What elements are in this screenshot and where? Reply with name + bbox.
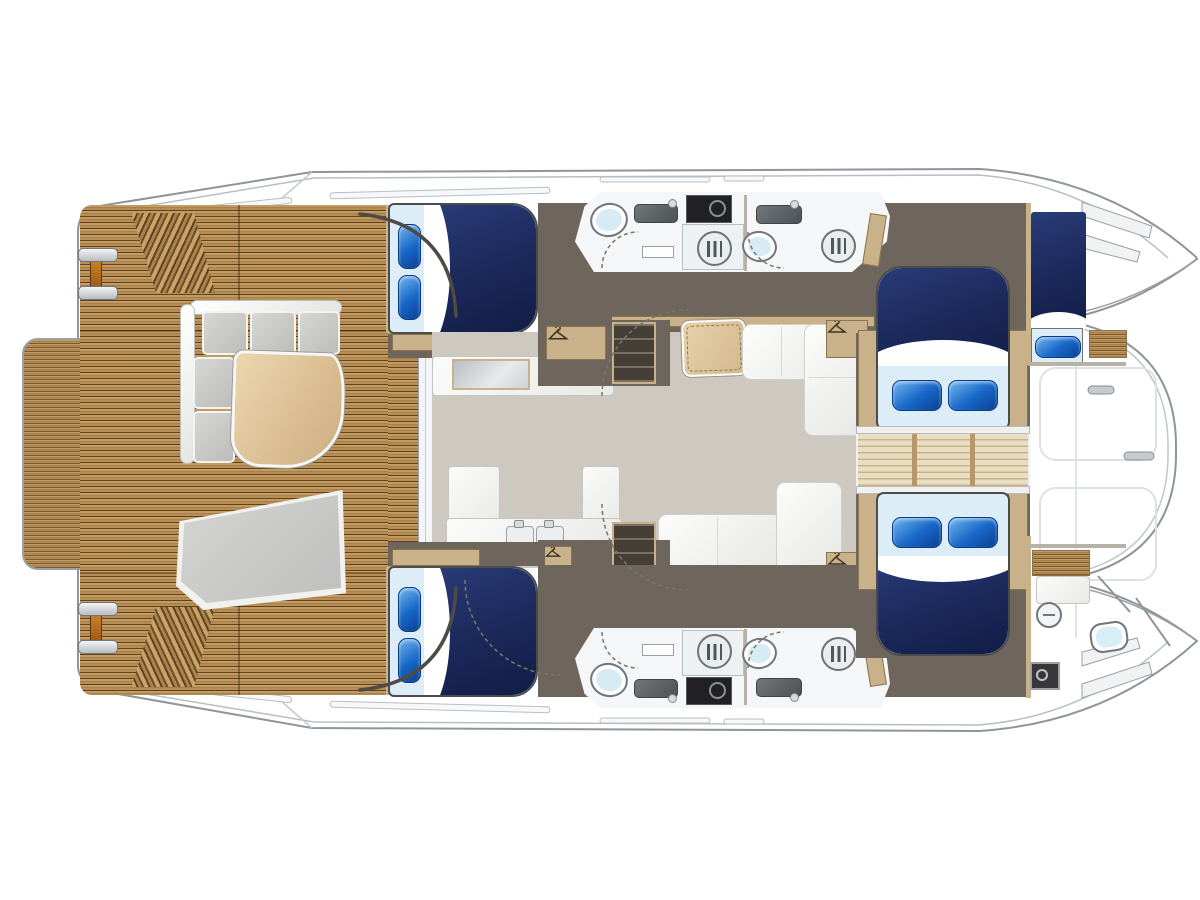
shower-mixer [1036,602,1062,628]
galley-counter-left [448,466,500,526]
drain-slots [831,238,846,254]
pillow [398,224,421,269]
heads-divider-wall [744,629,747,705]
cleat-icon [78,600,118,656]
hanger-icon [547,327,569,342]
salon-sofa [658,514,782,572]
duvet [424,568,536,695]
shower-fitting [642,644,674,656]
skipper-cabin-wall [1028,362,1126,366]
shower-drain-icon [821,637,856,671]
sofa-cushion [250,311,296,355]
bed-port-aft [388,203,538,334]
duvet [1031,212,1086,330]
shower-fitting [642,246,674,258]
pillow [892,380,942,411]
hanger-icon [545,547,561,559]
walkway-divider [912,434,917,486]
galley-faucet [544,520,554,528]
pillow [398,587,421,632]
sofa-cushion [202,311,248,355]
drain-slots [831,646,846,662]
bed-skipper [1031,212,1089,364]
duvet [878,556,1008,654]
crew-head-counter [1032,550,1090,576]
shower-drain-icon [697,634,732,669]
dinette-table [681,319,747,377]
pillow [948,517,998,548]
walkway-divider [970,434,975,486]
cabinet-glass-door [452,359,530,390]
pillow [398,275,421,320]
bow-walkway-slats [856,434,1030,486]
lounge-cushion [181,495,341,603]
stairs-port-hull [612,322,656,384]
pillow [948,380,998,411]
bed-port-forward [876,266,1010,430]
faucet [790,200,799,209]
cleat-icon [78,246,118,302]
pillow [892,517,942,548]
deck-hatch-icon [1030,662,1060,690]
duvet [424,205,536,332]
pillow [398,638,421,683]
galley-faucet [514,520,524,528]
nightstand [858,330,878,430]
bow-walkway-rail [856,426,1030,434]
heads-divider-wall [744,195,747,271]
sofa-cushion [193,357,235,409]
galley-counter-right [582,466,620,526]
shower-drain-icon [697,231,732,266]
starboard-bed-shelf [392,549,480,566]
cockpit-lounge-seat [176,490,346,610]
washing-machine-icon [686,195,732,223]
sofa-cushion [193,411,235,463]
faucet [668,694,677,703]
crew-head-wall [1028,544,1126,548]
drain-slots [707,241,722,257]
wardrobe [546,326,606,360]
drain-slots [707,644,722,660]
skipper-cabin-sole [1089,330,1127,358]
washing-machine-icon [686,677,732,705]
shower-drain-icon [821,229,856,263]
sofa-cushion [298,311,340,355]
bed-starboard-aft [388,566,538,697]
deck-plan [0,0,1200,900]
nightstand [1008,490,1028,590]
hanger-icon [827,321,847,335]
nightstand [1008,330,1028,430]
faucet [790,693,799,702]
crew-head-console [1036,576,1090,604]
aft-deck-door-sill [388,332,420,575]
faucet [668,199,677,208]
duvet [878,268,1008,366]
bed-starboard-forward [876,492,1010,656]
nightstand [858,490,878,590]
pillow [1035,336,1081,358]
